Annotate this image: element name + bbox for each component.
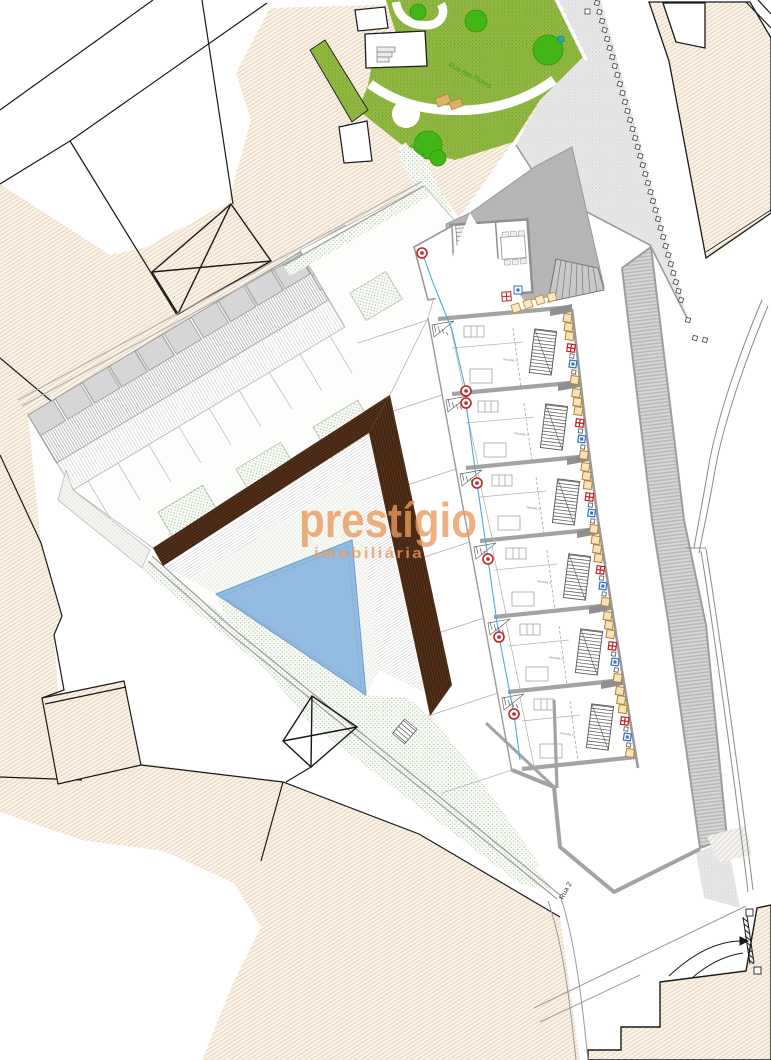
svg-text:imobiliária: imobiliária bbox=[314, 545, 424, 562]
svg-text:prestígio: prestígio bbox=[299, 494, 477, 548]
